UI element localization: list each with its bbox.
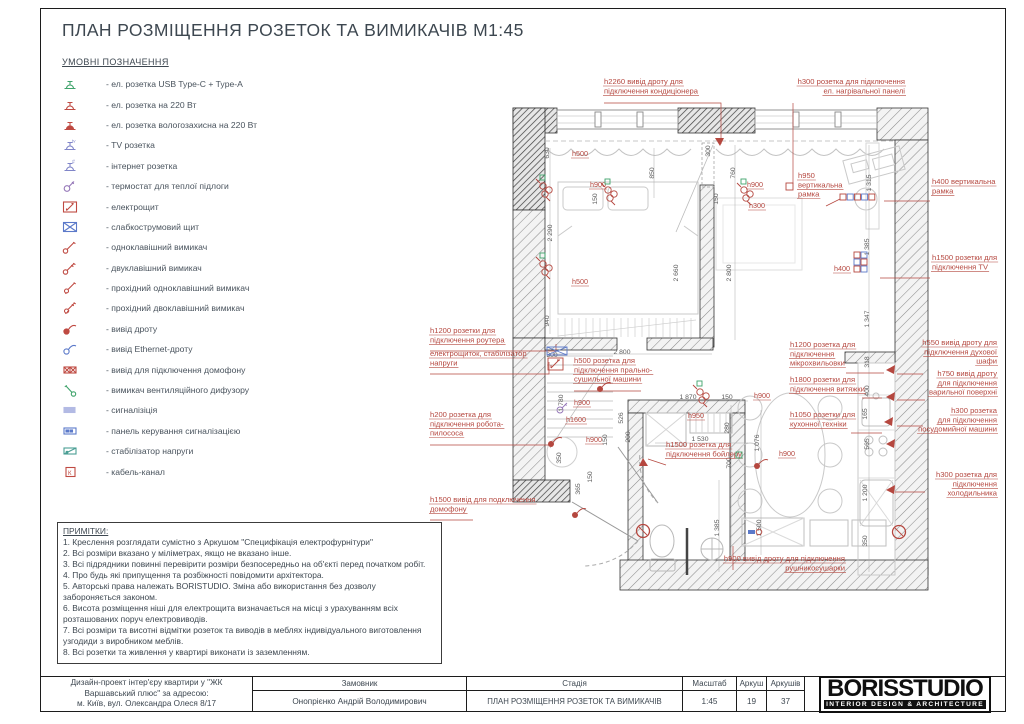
logo-subtitle: INTERIOR DESIGN & ARCHITECTURE — [824, 700, 986, 709]
legend-item: - ел. розетка на 220 Вт — [62, 94, 412, 114]
note-line: 5. Авторські права належать BORISTUDIO. … — [63, 581, 435, 603]
legend-item-label: - термостат для теплої підлоги — [106, 181, 229, 191]
switch-2-icon — [62, 260, 80, 276]
legend-item-label: - сигналізіція — [106, 405, 157, 415]
note-line: 6. Висота розміщення ніші для електрощит… — [63, 603, 435, 625]
sheet-value: 19 — [737, 691, 766, 711]
legend-item: - слабкострумовий щит — [62, 217, 412, 237]
legend-items: - ел. розетка USB Type-C + Type-A- ел. р… — [62, 74, 412, 482]
legend-item-label: - вивід дроту — [106, 324, 157, 334]
legend-item-label: - TV розетка — [106, 140, 155, 150]
legend-item: - сигналізіція — [62, 400, 412, 420]
notes-heading: ПРИМІТКИ: — [63, 526, 435, 537]
notes-lines: 1. Креслення розглядати сумістно з Аркуш… — [63, 537, 435, 658]
legend-item-label: - ел. розетка USB Type-C + Type-A — [106, 79, 243, 89]
sheet-cell: Аркуш 19 — [737, 677, 767, 711]
stage-label: Стадія — [467, 677, 682, 691]
legend-item-label: - прохідний двоклавішний вимикач — [106, 303, 244, 313]
alarm-icon — [62, 402, 80, 418]
note-line: 7. Всі розміри та висотні відмітки розет… — [63, 625, 435, 647]
svg-text:#: # — [72, 159, 75, 165]
legend-item-label: - ел. розетка на 220 Вт — [106, 100, 196, 110]
legend-item-label: - прохідний одноклавішний вимикач — [106, 283, 249, 293]
customer-label: Замовник — [253, 677, 466, 691]
legend-item: - ел. розетка USB Type-C + Type-A — [62, 74, 412, 94]
note-line: 4. Про будь які припущення та розбіжност… — [63, 570, 435, 581]
sheet-label: Аркуш — [737, 677, 766, 691]
socket-net-icon: # — [62, 158, 80, 174]
logo-text: BORISSTUDIO — [824, 678, 986, 700]
stage-cell: Стадія ПЛАН РОЗМІЩЕННЯ РОЗЕТОК ТА ВИМИКА… — [467, 677, 683, 711]
legend-item: - ел. розетка вологозахисна на 220 Вт — [62, 115, 412, 135]
note-line: 2. Всі розміри вказано у міліметрах, якщ… — [63, 548, 435, 559]
legend-item-label: - вивід Ethernet-дроту — [106, 344, 193, 354]
note-line: 8. Всі розетки та живлення у квартирі ви… — [63, 647, 435, 658]
note-line: 1. Креслення розглядати сумістно з Аркуш… — [63, 537, 435, 548]
switch-1-pass-icon — [62, 280, 80, 296]
legend-item-label: - інтернет розетка — [106, 161, 177, 171]
legend-item-label: - кабель-канал — [106, 467, 165, 477]
scale-label: Масштаб — [683, 677, 736, 691]
legend-item-label: - слабкострумовий щит — [106, 222, 199, 232]
scale-value: 1:45 — [683, 691, 736, 711]
legend-item: - вивід Ethernet-дроту — [62, 339, 412, 359]
sheets-label: Аркушів — [767, 677, 804, 691]
logo-cell: BORISSTUDIO INTERIOR DESIGN & ARCHITECTU… — [805, 677, 1005, 711]
svg-text:tv: tv — [72, 139, 76, 144]
domofon-out-icon — [62, 362, 80, 378]
socket-usb-icon — [62, 76, 80, 92]
switch-2-pass-icon — [62, 300, 80, 316]
legend-item: - панель керування сигналізацією — [62, 421, 412, 441]
title-block: Дизайн-проект інтер'єру квартири у "ЖК В… — [40, 676, 1006, 712]
legend-item: - вивід для підключення домофону — [62, 359, 412, 379]
customer-name: Онопрієнко Андрій Володимирович — [253, 691, 466, 711]
socket-wet-icon — [62, 117, 80, 133]
legend-item: - вивід дроту — [62, 319, 412, 339]
page-title: ПЛАН РОЗМІЩЕННЯ РОЗЕТОК ТА ВИМИКАЧІВ М1:… — [62, 20, 524, 41]
project-info: Дизайн-проект інтер'єру квартири у "ЖК В… — [41, 677, 253, 711]
socket-tv-icon: tv — [62, 137, 80, 153]
legend-item: - одноклавішний вимикач — [62, 237, 412, 257]
legend-item: - двуклавішний вимикач — [62, 258, 412, 278]
svg-text:К: К — [68, 470, 72, 476]
customer-cell: Замовник Онопрієнко Андрій Володимирович — [253, 677, 467, 711]
borisstudio-logo: BORISSTUDIO INTERIOR DESIGN & ARCHITECTU… — [819, 676, 991, 713]
legend-item-label: - електрощит — [106, 202, 159, 212]
weak-panel-icon — [62, 219, 80, 235]
socket-220-icon — [62, 97, 80, 113]
legend-item: tv- TV розетка — [62, 135, 412, 155]
thermostat-icon — [62, 178, 80, 194]
notes-box: ПРИМІТКИ: 1. Креслення розглядати суміст… — [57, 522, 442, 664]
vent-switch-icon — [62, 382, 80, 398]
legend-item: - стабілізатор напруги — [62, 441, 412, 461]
legend-item: #- інтернет розетка — [62, 156, 412, 176]
legend-item: - прохідний двоклавішний вимикач — [62, 298, 412, 318]
scale-cell: Масштаб 1:45 — [683, 677, 737, 711]
legend-item-label: - ел. розетка вологозахисна на 220 Вт — [106, 120, 257, 130]
cable-channel-icon: К — [62, 464, 80, 480]
legend-item: - вимикач вентиляційного дифузору — [62, 380, 412, 400]
stage-value: ПЛАН РОЗМІЩЕННЯ РОЗЕТОК ТА ВИМИКАЧІВ — [467, 691, 682, 711]
sheets-value: 37 — [767, 691, 804, 711]
legend-item: - електрощит — [62, 196, 412, 216]
legend: УМОВНІ ПОЗНАЧЕННЯ - ел. розетка USB Type… — [62, 57, 412, 482]
switch-1-icon — [62, 239, 80, 255]
legend-item: - прохідний одноклавішний вимикач — [62, 278, 412, 298]
legend-item-label: - панель керування сигналізацією — [106, 426, 240, 436]
legend-item-label: - стабілізатор напруги — [106, 446, 193, 456]
stabilizer-icon — [62, 443, 80, 459]
wire-out-icon — [62, 321, 80, 337]
legend-heading: УМОВНІ ПОЗНАЧЕННЯ — [62, 57, 412, 67]
legend-item: - термостат для теплої підлоги — [62, 176, 412, 196]
note-line: 3. Всі підрядники повинні перевірити роз… — [63, 559, 435, 570]
sheets-cell: Аркушів 37 — [767, 677, 805, 711]
electro-panel-icon — [62, 199, 80, 215]
alarm-panel-icon — [62, 423, 80, 439]
legend-item-label: - одноклавішний вимикач — [106, 242, 207, 252]
legend-item-label: - вимикач вентиляційного дифузору — [106, 385, 249, 395]
ethernet-out-icon — [62, 341, 80, 357]
legend-item: К- кабель-канал — [62, 461, 412, 481]
legend-item-label: - двуклавішний вимикач — [106, 263, 202, 273]
legend-item-label: - вивід для підключення домофону — [106, 365, 245, 375]
